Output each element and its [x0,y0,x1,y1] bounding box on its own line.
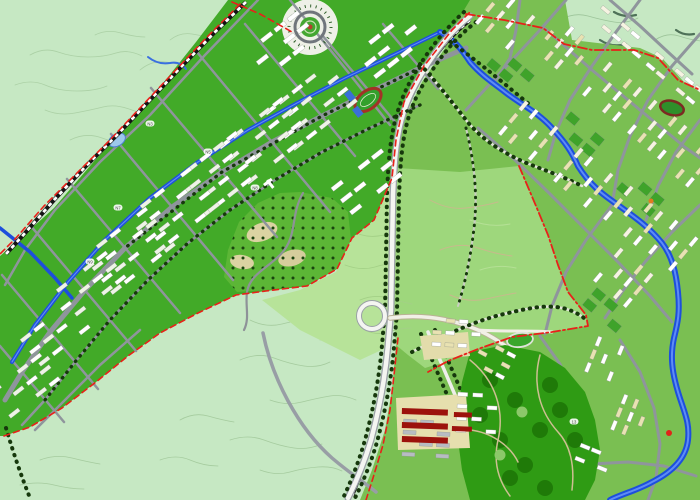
poi-marker-orange [649,199,654,204]
block-label: 13 [570,419,579,425]
master-plan-map: N3N5N7N9N813 [0,0,700,500]
block-label: N5 [204,149,213,155]
svg-text:N9: N9 [87,260,93,265]
poi-marker-red [666,430,672,436]
block-label: N8 [251,185,260,191]
south-connector-branch [478,330,552,332]
svg-text:N8: N8 [252,186,258,191]
block-label: N7 [114,205,123,211]
svg-text:N5: N5 [205,150,211,155]
svg-text:N7: N7 [115,206,121,211]
block-label: N9 [86,259,95,265]
svg-text:13: 13 [572,420,577,425]
svg-text:N3: N3 [147,122,153,127]
block-label: N3 [146,121,155,127]
master-plan-canvas: N3N5N7N9N813 [0,0,700,500]
